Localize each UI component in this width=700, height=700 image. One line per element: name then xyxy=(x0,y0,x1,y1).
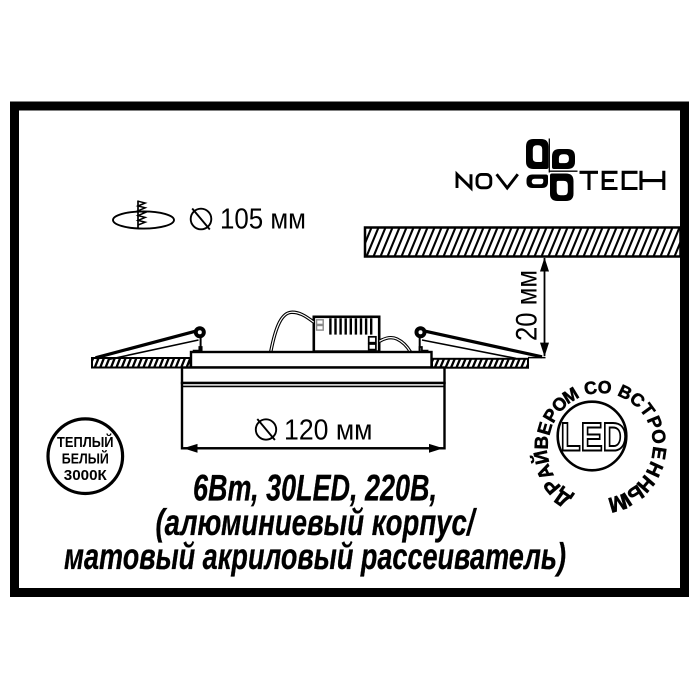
svg-text:20 мм: 20 мм xyxy=(511,270,544,341)
svg-text:О: О xyxy=(647,428,670,445)
svg-text:ТЕПЛЫЙ: ТЕПЛЫЙ xyxy=(57,433,114,451)
svg-text:120 мм: 120 мм xyxy=(284,414,373,446)
svg-text:LED: LED xyxy=(561,416,627,460)
svg-text:матовый акриловый рассеиватель: матовый акриловый рассеиватель) xyxy=(64,536,566,577)
svg-text:105 мм: 105 мм xyxy=(220,204,306,236)
svg-text:БЕЛЫЙ: БЕЛЫЙ xyxy=(62,450,109,468)
svg-text:В: В xyxy=(532,435,553,449)
svg-text:О: О xyxy=(597,377,612,398)
svg-text:3000К: 3000К xyxy=(64,467,108,484)
